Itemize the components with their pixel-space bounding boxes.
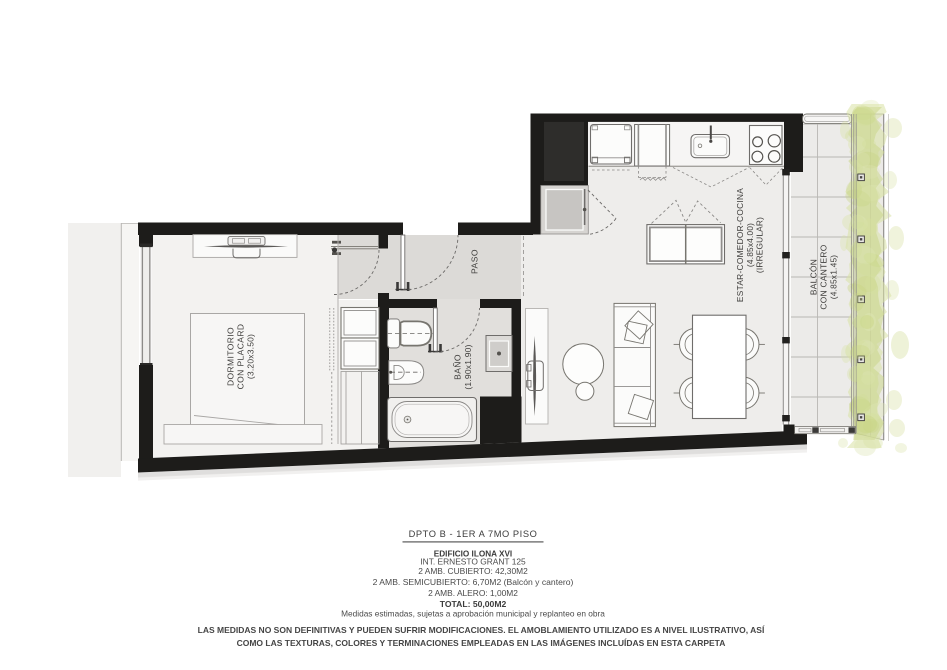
svg-text:PASO: PASO xyxy=(470,249,480,274)
svg-text:BALCÓN: BALCÓN xyxy=(809,259,819,295)
svg-text:INT. ERNESTO GRANT 125: INT. ERNESTO GRANT 125 xyxy=(420,556,526,566)
svg-text:DORMITORIO: DORMITORIO xyxy=(226,327,236,386)
svg-text:BAÑO: BAÑO xyxy=(453,354,463,380)
svg-text:CON PLACARD: CON PLACARD xyxy=(236,324,246,390)
svg-text:(3.20x3.50): (3.20x3.50) xyxy=(246,334,256,379)
svg-text:(4.85x1.45): (4.85x1.45) xyxy=(829,255,839,300)
svg-text:(IRREGULAR): (IRREGULAR) xyxy=(755,217,765,273)
svg-text:CON CANTERO: CON CANTERO xyxy=(819,244,829,309)
svg-text:LAS MEDIDAS NO SON DEFINITIVAS: LAS MEDIDAS NO SON DEFINITIVAS Y PUEDEN … xyxy=(198,625,765,635)
svg-text:(4.85x4.00): (4.85x4.00) xyxy=(745,223,755,267)
svg-text:(1.90x1.90): (1.90x1.90) xyxy=(463,344,473,389)
svg-text:TOTAL: 50,00M2: TOTAL: 50,00M2 xyxy=(440,599,507,609)
svg-text:2 AMB. SEMICUBIERTO: 6,70M2 (B: 2 AMB. SEMICUBIERTO: 6,70M2 (Balcón y ca… xyxy=(373,577,574,587)
svg-text:DPTO B - 1ER A 7MO PISO: DPTO B - 1ER A 7MO PISO xyxy=(409,529,538,539)
svg-text:2 AMB. CUBIERTO: 42,30M2: 2 AMB. CUBIERTO: 42,30M2 xyxy=(418,566,528,576)
svg-text:ESTAR-COMEDOR-COCINA: ESTAR-COMEDOR-COCINA xyxy=(735,188,745,302)
svg-text:2 AMB. ALERO: 1,00M2: 2 AMB. ALERO: 1,00M2 xyxy=(428,588,518,598)
svg-text:COMO LAS TEXTURAS, COLORES Y T: COMO LAS TEXTURAS, COLORES Y TERMINACION… xyxy=(237,638,726,648)
svg-text:Medidas estimadas, sujetas a a: Medidas estimadas, sujetas a aprobación … xyxy=(341,608,605,618)
